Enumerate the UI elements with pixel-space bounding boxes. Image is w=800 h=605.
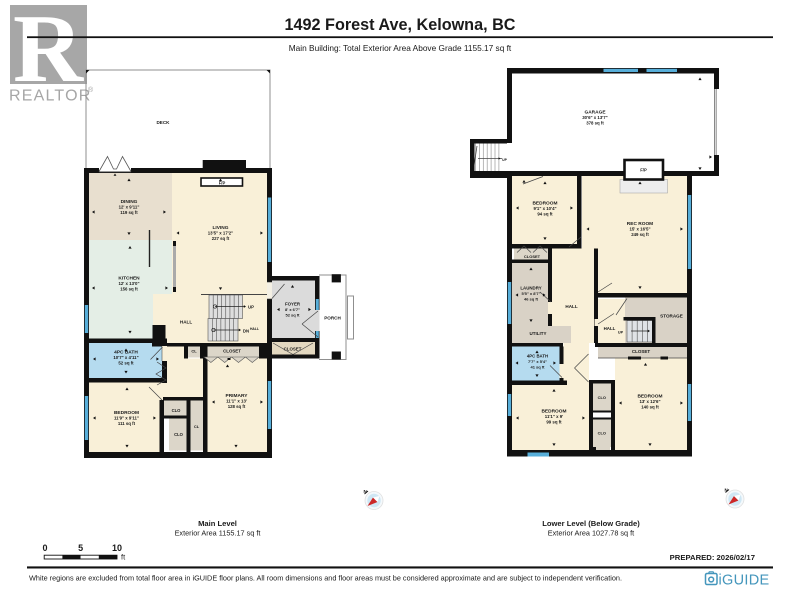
svg-text:CL: CL bbox=[194, 424, 200, 429]
svg-text:UP: UP bbox=[618, 331, 624, 335]
svg-text:UTILITY: UTILITY bbox=[530, 331, 547, 336]
svg-text:7'7" x 5'4": 7'7" x 5'4" bbox=[528, 359, 547, 364]
svg-text:11'9" x 9'11": 11'9" x 9'11" bbox=[114, 416, 139, 421]
svg-text:11'1" x 9': 11'1" x 9' bbox=[545, 414, 563, 419]
svg-text:HALL: HALL bbox=[565, 304, 577, 309]
svg-text:REALTOR: REALTOR bbox=[9, 88, 92, 105]
svg-text:CLOSET: CLOSET bbox=[524, 254, 541, 259]
svg-text:F/P: F/P bbox=[640, 168, 647, 173]
svg-text:11'1" x 13': 11'1" x 13' bbox=[226, 399, 247, 404]
svg-text:HALL: HALL bbox=[180, 320, 192, 325]
svg-text:UP: UP bbox=[248, 305, 254, 310]
svg-text:Lower Level (Below Grade): Lower Level (Below Grade) bbox=[542, 519, 640, 528]
svg-text:12' x 13'0": 12' x 13'0" bbox=[118, 281, 139, 286]
svg-text:10: 10 bbox=[112, 543, 122, 553]
svg-text:13' x 12'6": 13' x 12'6" bbox=[639, 399, 660, 404]
svg-text:CLO: CLO bbox=[598, 395, 606, 400]
svg-text:LAUNDRY: LAUNDRY bbox=[520, 286, 541, 291]
svg-text:HALL: HALL bbox=[604, 326, 616, 331]
svg-text:CL: CL bbox=[191, 349, 197, 354]
svg-text:41 sq ft: 41 sq ft bbox=[530, 365, 545, 370]
svg-text:12' x 9'11": 12' x 9'11" bbox=[119, 205, 140, 210]
svg-text:CLOSET: CLOSET bbox=[632, 349, 651, 354]
svg-text:DN: DN bbox=[243, 329, 249, 334]
svg-text:HALL: HALL bbox=[250, 327, 259, 331]
svg-text:CLOSET: CLOSET bbox=[284, 347, 302, 352]
svg-text:CLO: CLO bbox=[172, 408, 182, 413]
svg-text:8' x 6'7": 8' x 6'7" bbox=[285, 307, 300, 312]
svg-text:CLO: CLO bbox=[174, 432, 184, 437]
svg-text:PORCH: PORCH bbox=[324, 316, 341, 321]
svg-text:9'1" x 10'4": 9'1" x 10'4" bbox=[533, 206, 556, 211]
svg-text:10'7" x 4'11": 10'7" x 4'11" bbox=[113, 355, 138, 360]
svg-text:STORAGE: STORAGE bbox=[660, 314, 683, 319]
svg-text:®: ® bbox=[88, 86, 94, 94]
svg-text:1492 Forest Ave, Kelowna, BC: 1492 Forest Ave, Kelowna, BC bbox=[285, 16, 516, 34]
svg-text:CLOSET: CLOSET bbox=[223, 349, 241, 354]
svg-text:94 sq ft: 94 sq ft bbox=[537, 212, 553, 217]
svg-text:119 sq ft: 119 sq ft bbox=[120, 210, 138, 215]
svg-text:99 sq ft: 99 sq ft bbox=[546, 420, 562, 425]
svg-text:Main Level: Main Level bbox=[198, 519, 237, 528]
svg-text:52 sq ft: 52 sq ft bbox=[118, 361, 134, 366]
svg-text:249 sq ft: 249 sq ft bbox=[631, 232, 649, 237]
svg-text:128 sq ft: 128 sq ft bbox=[228, 404, 246, 409]
svg-text:White regions are excluded fro: White regions are excluded from total fl… bbox=[29, 574, 622, 583]
svg-text:156 sq ft: 156 sq ft bbox=[120, 287, 138, 292]
svg-text:Exterior Area 1027.78 sq ft: Exterior Area 1027.78 sq ft bbox=[548, 529, 634, 538]
svg-text:Exterior Area 1155.17 sq ft: Exterior Area 1155.17 sq ft bbox=[175, 529, 261, 538]
svg-text:DECK: DECK bbox=[156, 120, 170, 125]
svg-text:5: 5 bbox=[78, 543, 83, 553]
svg-text:CLO: CLO bbox=[598, 431, 606, 436]
svg-text:30'6" x 13'7": 30'6" x 13'7" bbox=[582, 115, 608, 120]
svg-text:140 sq ft: 140 sq ft bbox=[641, 405, 659, 410]
svg-text:Main Building: Total Exterior: Main Building: Total Exterior Area Above… bbox=[289, 43, 512, 53]
svg-text:52 sq ft: 52 sq ft bbox=[285, 313, 300, 318]
svg-text:46 sq ft: 46 sq ft bbox=[524, 297, 539, 302]
svg-text:13'5" x 17'2": 13'5" x 17'2" bbox=[208, 231, 234, 236]
svg-text:378 sq ft: 378 sq ft bbox=[586, 121, 604, 126]
svg-text:227 sq ft: 227 sq ft bbox=[212, 236, 230, 241]
svg-text:111 sq ft: 111 sq ft bbox=[118, 421, 136, 426]
svg-text:UP: UP bbox=[502, 158, 507, 162]
svg-text:FOYER: FOYER bbox=[285, 302, 301, 307]
svg-text:4PC BATH: 4PC BATH bbox=[527, 354, 548, 359]
svg-text:iGUIDE: iGUIDE bbox=[719, 573, 770, 589]
svg-text:5'5" x 8'7": 5'5" x 8'7" bbox=[521, 291, 540, 296]
svg-text:PREPARED: 2026/02/17: PREPARED: 2026/02/17 bbox=[670, 553, 755, 562]
svg-text:0: 0 bbox=[42, 543, 47, 553]
svg-text:15' x 16'5": 15' x 16'5" bbox=[629, 227, 650, 232]
